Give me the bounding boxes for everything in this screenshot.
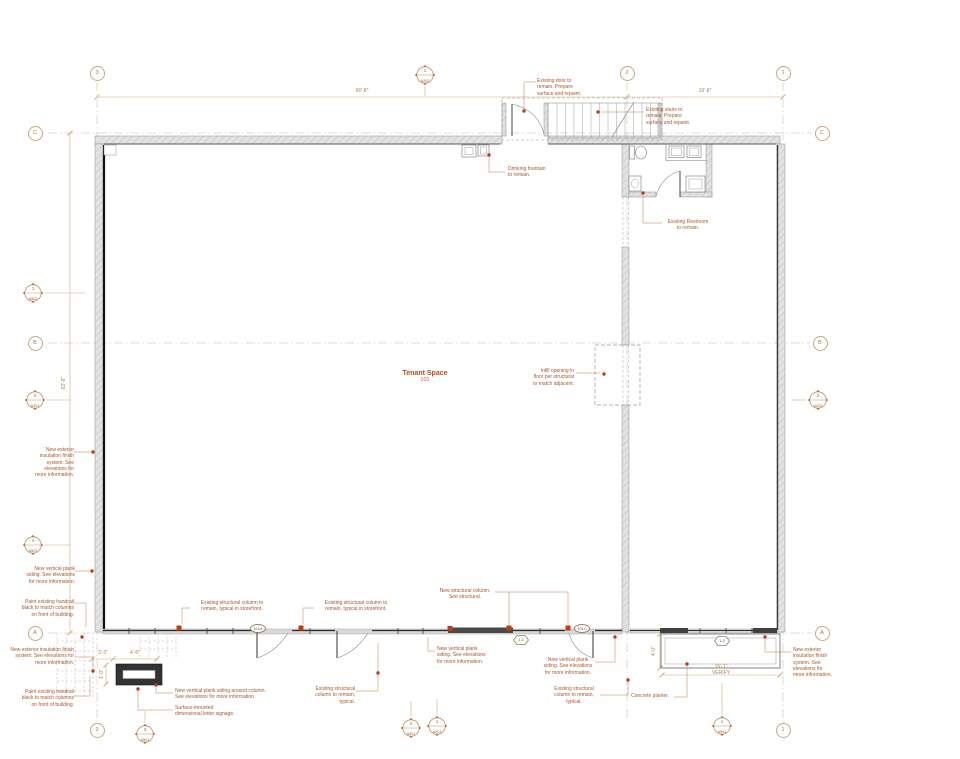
dim-sign-h: 1'-0": [99, 659, 105, 689]
sign: [116, 664, 162, 685]
grid-bubble-3-top: 3: [90, 66, 105, 81]
grid-bubble-b-right: B: [813, 336, 828, 351]
section-marker-a201-bottom-center: 1 A201: [426, 715, 448, 737]
section-marker-a202-right: 2 A202: [807, 389, 829, 411]
annotation-col-storefront-1: Existing structural column to remain, ty…: [192, 600, 272, 613]
infill-opening-outline: [595, 345, 640, 405]
restroom-fixtures: [629, 144, 707, 197]
grid-bubble-b-left: B: [28, 336, 43, 351]
stairs: [502, 98, 662, 140]
annotation-infill-opening: Infill opening in floor per structural t…: [518, 368, 574, 387]
section-marker-a202-top: 1 A202: [414, 64, 436, 86]
leader-dots: [80, 109, 766, 690]
section-marker-a501-bottom-right: 1 A501: [711, 715, 733, 737]
dim-top-main: 66'-8": [327, 88, 397, 94]
annotation-eifs-left: New exterior insulation finish system. S…: [20, 447, 74, 478]
grid-bubble-c-right: C: [815, 126, 830, 141]
annotation-drinking-fountain: Drinking fountain to remain.: [508, 166, 556, 179]
grid-bubble-2-top: 2: [620, 66, 635, 81]
room-label: Tenant Space 101: [375, 370, 475, 383]
annotation-new-column: New structural column. See structural.: [436, 588, 494, 601]
annotation-eifs-bottom-left: New exterior insulation finish system. S…: [0, 647, 74, 666]
leader-lines: [74, 82, 791, 710]
annotation-handrail-bottom: Paint existing handrail black to match c…: [8, 689, 74, 708]
grid-bubble-a-left: A: [28, 626, 43, 641]
door-tag-101a: 101A: [250, 624, 266, 633]
annotation-col-typical-2: Existing structural column to remain, ty…: [546, 686, 602, 705]
dim-sign-w2: 4'-5": [122, 650, 148, 656]
dim-planter-depth: 4'-0": [651, 636, 657, 666]
room-name: Tenant Space: [375, 370, 475, 377]
grid-bubble-1-top: 1: [776, 66, 791, 81]
annotation-existing-restroom: Existing Restroom to remain.: [664, 219, 712, 232]
annotation-plank-around-column: New vertical plank siding around column.…: [175, 688, 279, 701]
grid-bubble-c-left: C: [28, 126, 43, 141]
annotation-col-storefront-2: Existing structural column to remain, ty…: [316, 600, 396, 613]
section-marker-a501-bottom-center: 2 A501: [400, 717, 422, 739]
walls: [95, 103, 785, 632]
floor-plan-sheet: Tenant Space 101 3 2 1 3 1 C B A C B A 1…: [0, 0, 960, 759]
annotation-letter-signage: Surface-mounted dimensional letter signa…: [175, 705, 260, 718]
section-marker-a502-left: 1 A502: [22, 282, 44, 304]
room-number: 101: [375, 377, 475, 383]
annotation-concrete-planter: Concrete planter.: [631, 693, 677, 699]
wall-accents: [104, 144, 778, 630]
annotation-col-typical-1: Existing structural column to remain, ty…: [301, 686, 355, 705]
annotation-plank-mid-1: New vertical plank siding. See elevation…: [437, 646, 493, 665]
dim-verify-note: VERIFY: [691, 670, 751, 676]
dim-sign-w1: 3'-3": [92, 650, 114, 656]
grid-bubble-1-bottom: 1: [776, 723, 791, 738]
annotation-plank-left: New vertical plank siding. See elevation…: [11, 566, 75, 585]
grid-bubble-a-right: A: [815, 626, 830, 641]
dim-left-height: 62'-8": [61, 368, 67, 398]
window-tag-1-3: 1.3: [714, 636, 730, 646]
annotation-existing-door: Existing door to remain. Prepare surface…: [537, 78, 587, 97]
door-tag-101c: 101C: [574, 624, 590, 633]
section-marker-a201-left: 2 A201: [24, 389, 46, 411]
section-marker-a501-left: 4 A501: [22, 534, 44, 556]
annotation-existing-stairs: Existing stairs to remain. Prepare surfa…: [646, 107, 698, 126]
drinking-fountain: [462, 145, 489, 157]
window-tag-1-2: 1.2: [513, 635, 529, 645]
dim-top-right: 19'-8": [670, 88, 740, 94]
annotation-eifs-right: New exterior insulation finish system. S…: [793, 647, 843, 678]
annotation-handrail-top: Paint existing handrail black to match c…: [8, 599, 74, 618]
annotation-plank-mid-2: New vertical plank siding. See elevation…: [540, 657, 596, 676]
section-marker-a501-bottom-left: 3 A501: [134, 723, 156, 745]
grid-bubble-3-bottom: 3: [90, 723, 105, 738]
